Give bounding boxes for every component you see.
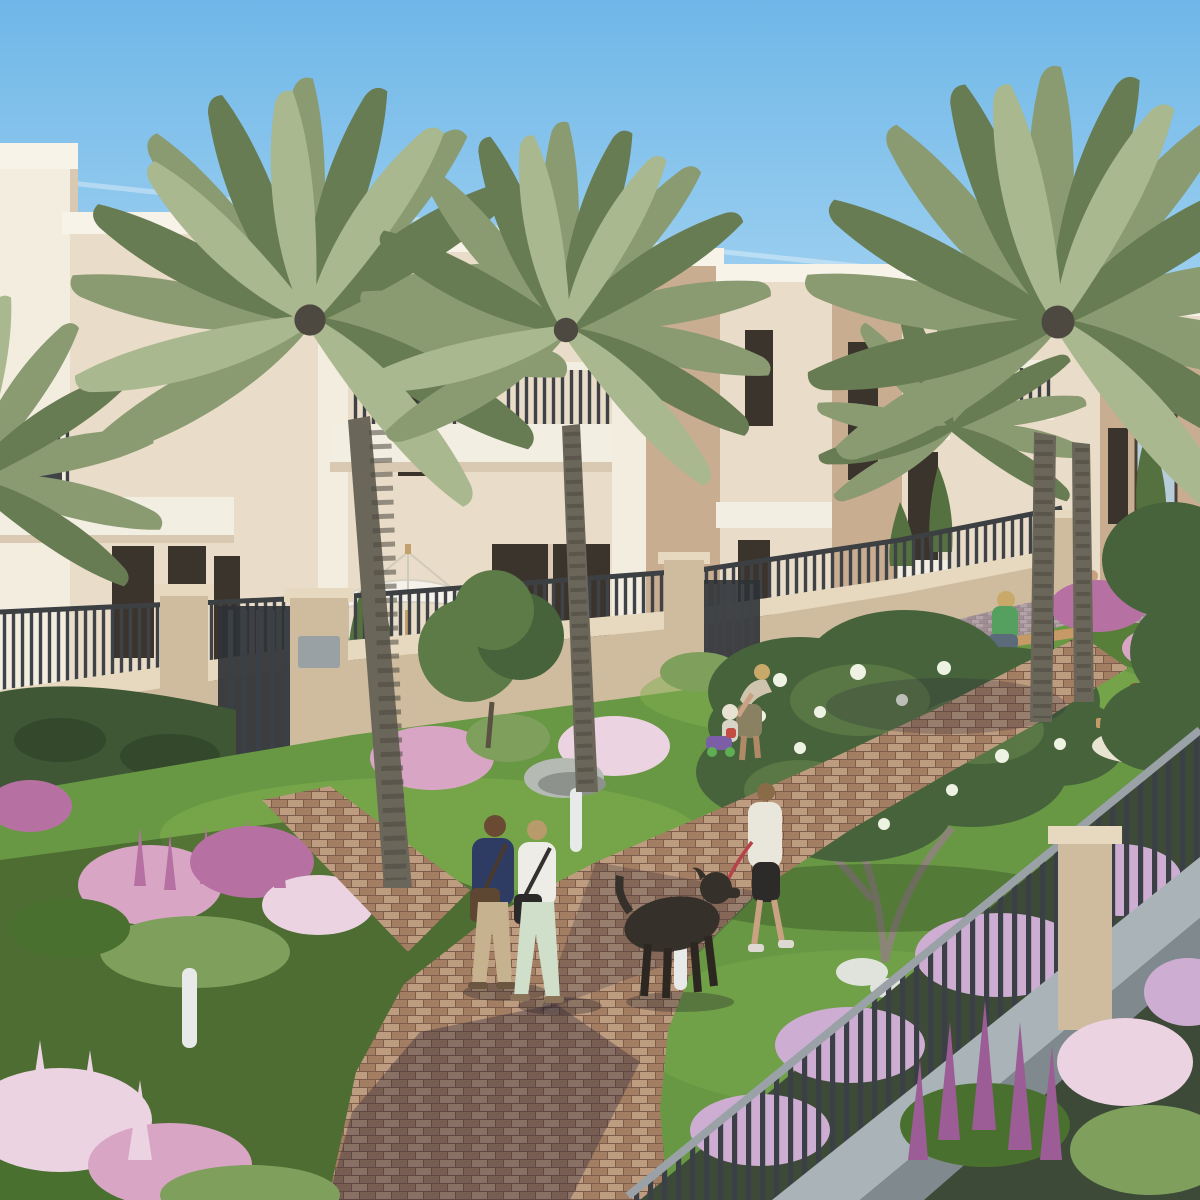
fence-pillar xyxy=(1058,840,1112,1030)
shrub xyxy=(466,714,550,762)
community-rendering xyxy=(0,0,1200,1200)
dog-muzzle xyxy=(724,888,740,898)
shrub xyxy=(10,898,130,958)
rendering-canvas xyxy=(0,0,1200,1200)
window xyxy=(745,330,773,426)
fence-pillar-cap xyxy=(1048,826,1122,844)
bollard-light xyxy=(182,968,197,1048)
leggings xyxy=(752,862,780,902)
window xyxy=(1108,428,1128,524)
balcony-slab xyxy=(716,502,834,528)
toddler-hat xyxy=(722,704,738,720)
path-shadow xyxy=(826,678,1066,734)
bollard-light xyxy=(570,788,582,852)
mailbox xyxy=(298,636,340,668)
palm-trunk xyxy=(1030,432,1056,722)
